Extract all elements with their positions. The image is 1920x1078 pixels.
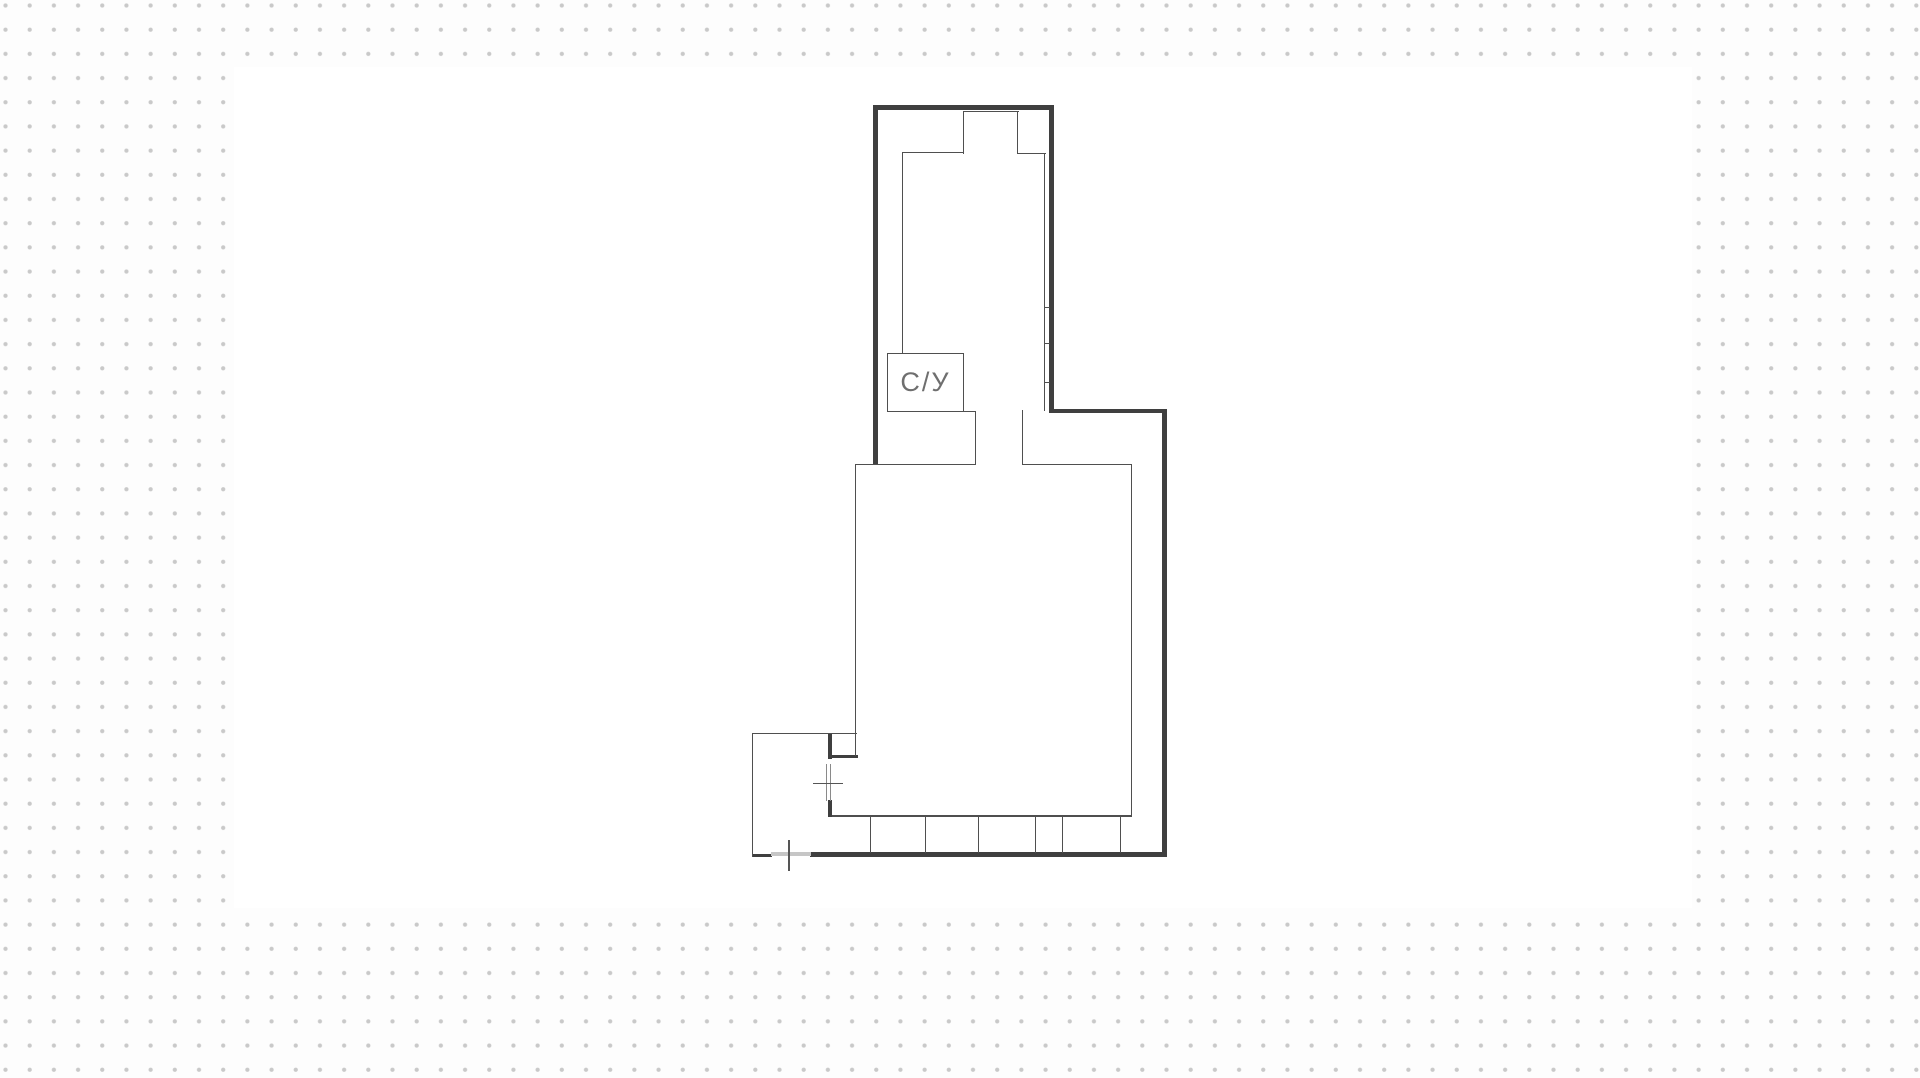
inner-wall-left-upper: [902, 152, 903, 354]
room-label-bathroom-text: С/У: [900, 369, 950, 396]
room-top-left-line: [855, 464, 976, 465]
shaft-right-line: [855, 733, 856, 756]
axis-cross-balcony: [788, 840, 790, 871]
room-left-wall-line: [855, 464, 856, 735]
floor-plan[interactable]: С/У: [0, 0, 1920, 1078]
window-mullion-6: [1120, 815, 1121, 853]
room-right-inner-line: [1131, 464, 1132, 817]
window-tick-2: [1044, 343, 1050, 345]
window-tick-3: [1044, 382, 1050, 384]
wall-top: [873, 105, 1054, 110]
window-tick-1: [1044, 307, 1050, 309]
room-top-right-line: [1022, 464, 1132, 465]
wall-mid-horizontal: [1049, 409, 1167, 414]
window-mullion-1: [870, 815, 871, 853]
window-mullion-4: [1035, 815, 1036, 853]
balcony-top-line: [752, 733, 857, 734]
door-jamb-right: [1022, 410, 1023, 466]
balcony-window-band: [771, 852, 812, 856]
wall-pier-lower: [828, 800, 832, 817]
door-jamb-left: [975, 411, 976, 466]
room-label-bathroom[interactable]: С/У: [887, 353, 964, 412]
wall-left: [873, 105, 878, 465]
room-bottom-inner-line: [832, 815, 1133, 816]
window-mullion-3: [978, 815, 979, 853]
inner-ceiling-left: [902, 152, 965, 153]
wall-bottom: [810, 852, 1167, 857]
ceiling-notch-left: [963, 111, 964, 154]
inner-ceiling-right: [1017, 153, 1046, 154]
ceiling-notch-top: [963, 111, 1019, 112]
window-mullion-5: [1062, 815, 1063, 853]
wall-right-outer: [1162, 409, 1167, 857]
ceiling-notch-right: [1017, 111, 1018, 155]
balcony-left-line: [752, 733, 753, 857]
inner-wall-right-upper: [1044, 153, 1045, 411]
axis-cross-door: [813, 783, 843, 785]
window-mullion-2: [925, 815, 926, 853]
wall-right-upper: [1049, 105, 1054, 413]
wall-bottom-left-segment: [752, 854, 772, 857]
canvas-viewport[interactable]: С/У: [0, 0, 1920, 1078]
wall-shaft-bottom: [828, 755, 859, 759]
